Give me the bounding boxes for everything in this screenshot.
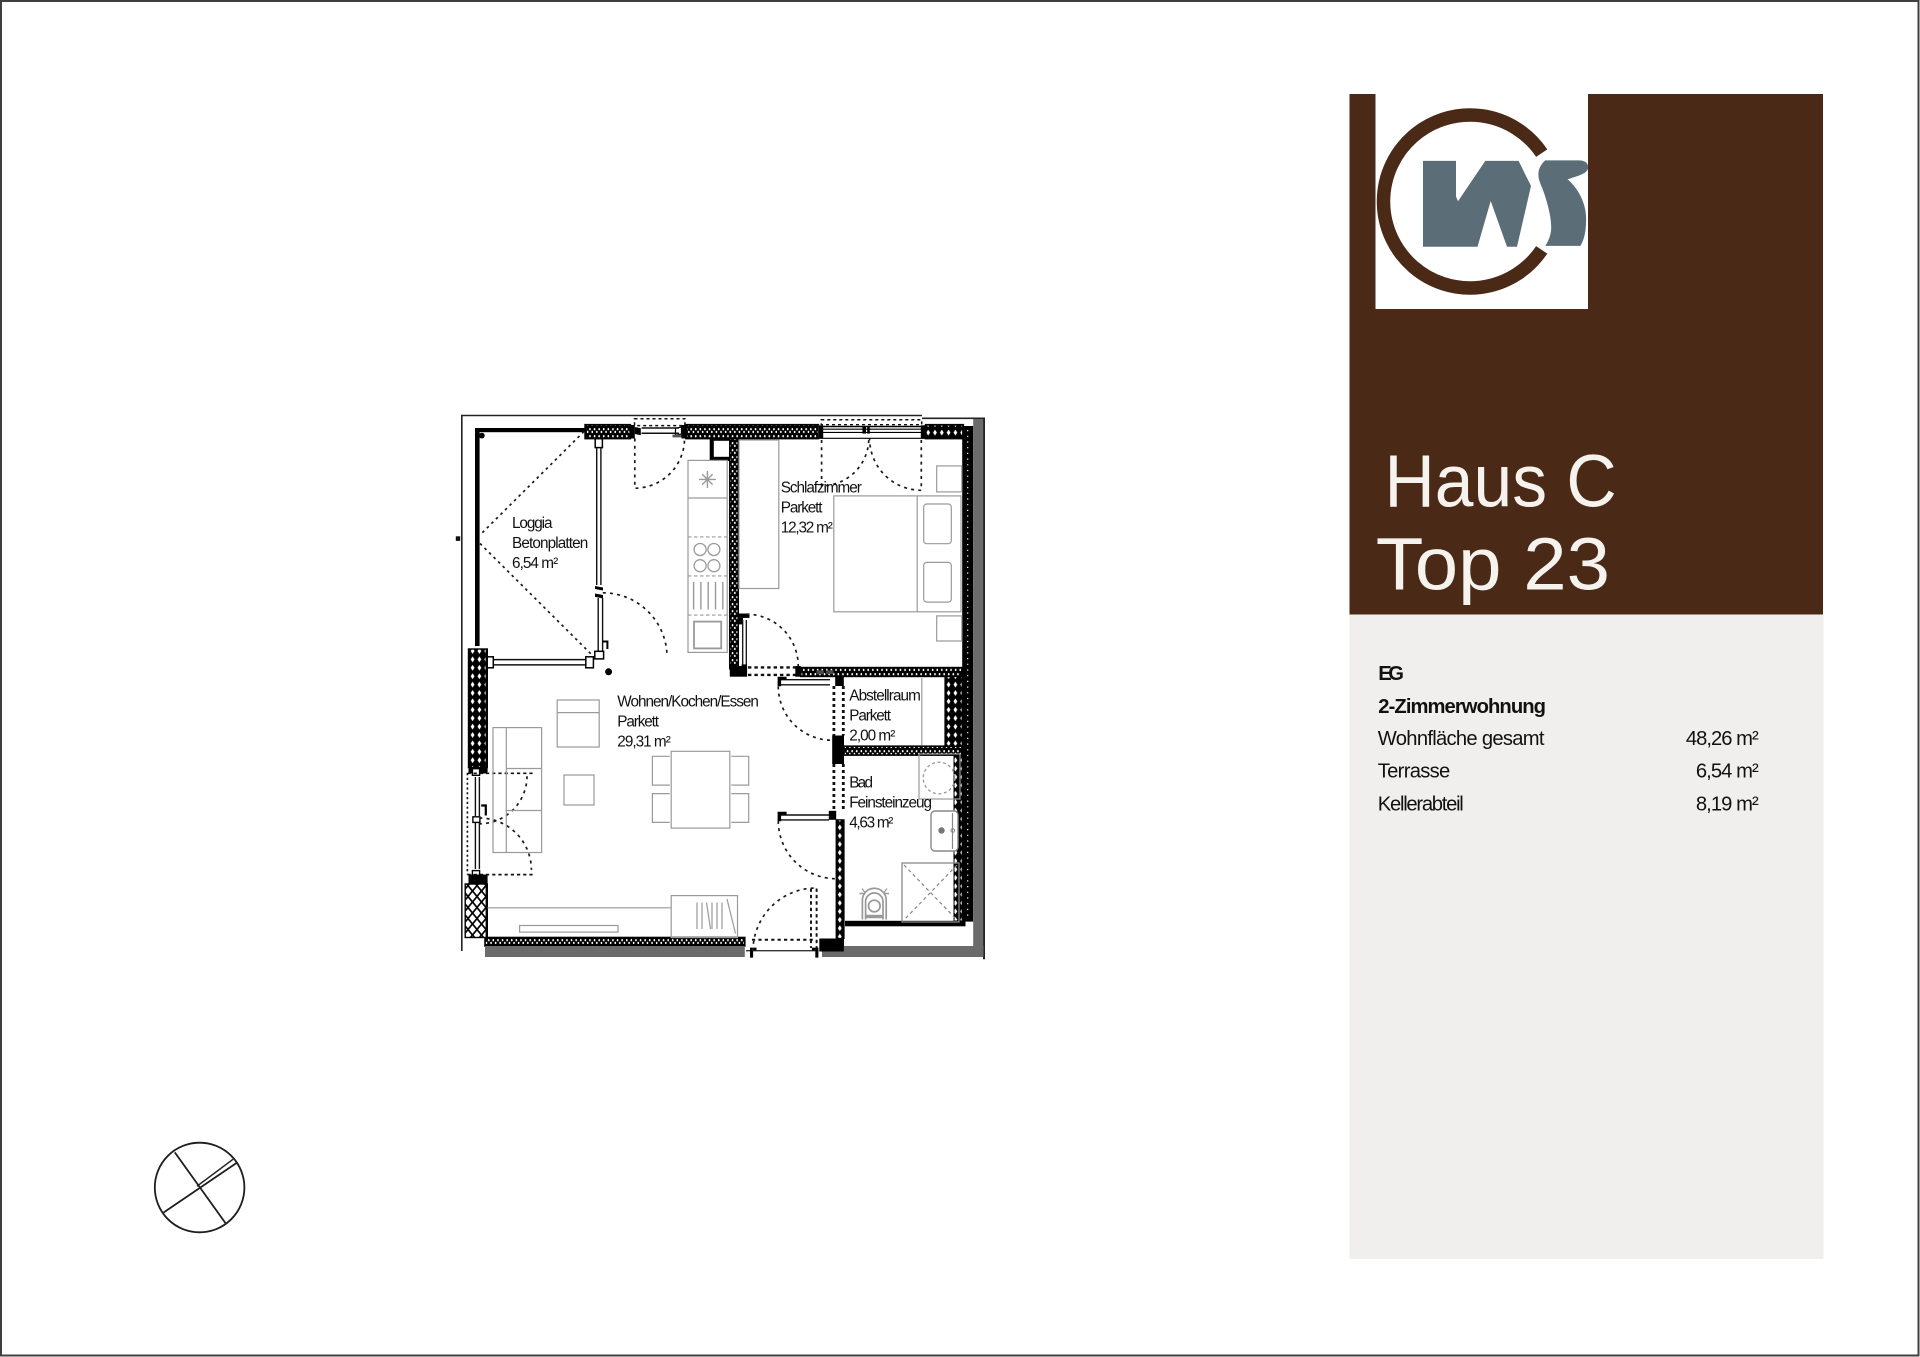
svg-text:Parkett: Parkett [849, 707, 891, 724]
svg-text:Betonplatten: Betonplatten [512, 535, 588, 552]
svg-text:Wohnen/Kochen/Essen: Wohnen/Kochen/Essen [617, 693, 759, 710]
svg-text:Feinsteinzeug: Feinsteinzeug [849, 795, 932, 812]
svg-text:Parkett: Parkett [617, 713, 659, 730]
svg-text:6,54 m²: 6,54 m² [512, 555, 558, 572]
svg-text:Kellerabteil: Kellerabteil [1378, 794, 1464, 816]
svg-text:4,63 m²: 4,63 m² [849, 815, 893, 832]
svg-text:Loggia: Loggia [512, 515, 553, 532]
svg-text:6,54 m²: 6,54 m² [1696, 761, 1759, 783]
svg-text:2-Zimmerwohnung: 2-Zimmerwohnung [1378, 696, 1546, 718]
svg-text:8,19 m²: 8,19 m² [1696, 794, 1759, 816]
svg-text:Haus C: Haus C [1385, 440, 1617, 523]
svg-text:Terrasse: Terrasse [1378, 761, 1450, 783]
svg-text:Schlafzimmer: Schlafzimmer [781, 480, 862, 497]
svg-text:EG: EG [1378, 663, 1404, 685]
svg-text:Abstellraum: Abstellraum [849, 687, 921, 704]
svg-text:Wohnfläche gesamt: Wohnfläche gesamt [1378, 728, 1545, 750]
svg-text:2,00 m²: 2,00 m² [849, 727, 895, 744]
svg-text:29,31 m²: 29,31 m² [617, 734, 671, 751]
svg-text:Parkett: Parkett [781, 500, 823, 517]
svg-text:Top 23: Top 23 [1376, 522, 1610, 605]
svg-text:48,26 m²: 48,26 m² [1686, 728, 1759, 750]
svg-text:Bad: Bad [849, 775, 873, 792]
svg-text:12,32 m²: 12,32 m² [781, 520, 833, 537]
